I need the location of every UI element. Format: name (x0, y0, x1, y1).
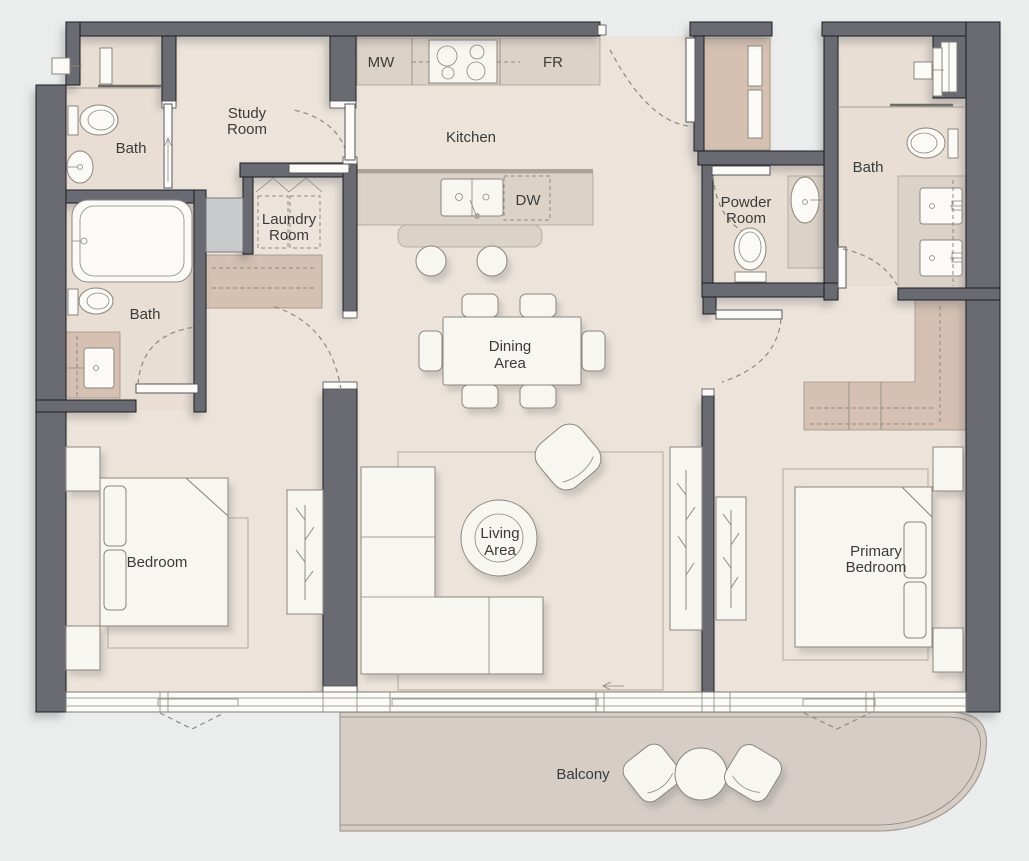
shower-head-icon (52, 58, 70, 74)
primary-bedroom-label: Bedroom (846, 559, 907, 576)
kitchen-label: Kitchen (446, 129, 496, 146)
bathtub-icon (72, 200, 192, 282)
bedroom-label: Bedroom (127, 554, 188, 571)
entry-door-leaf (686, 38, 695, 122)
bath-right-label: Bath (853, 159, 884, 176)
floor-plan-drawing: Study Room Kitchen Bath Laundry Room Pow… (0, 0, 1029, 861)
powder-label: Room (726, 210, 766, 227)
study-room-label: Room (227, 121, 267, 138)
dresser (287, 490, 323, 614)
island-breakfast-ledge (398, 225, 542, 247)
microwave-label: MW (368, 54, 395, 71)
pillow (904, 522, 926, 578)
entry-closet-door (748, 90, 762, 138)
toilet-icon (68, 105, 118, 135)
island-counter-edge (357, 169, 593, 173)
laundry-label: Laundry (262, 211, 317, 228)
dining-chair (520, 294, 556, 317)
dining-chair (582, 331, 605, 371)
shower-bar-icon (100, 48, 112, 84)
pillow (104, 550, 126, 610)
cooktop (429, 40, 497, 83)
pillow (104, 486, 126, 546)
dining-label: Area (494, 355, 526, 372)
balcony-furniture (618, 739, 786, 806)
toilet-icon (734, 228, 766, 282)
bath-left-door-leaf (136, 384, 198, 393)
balcony-label: Balcony (556, 766, 610, 783)
living-label: Area (484, 542, 516, 559)
dishwasher-label: DW (516, 192, 542, 209)
primary-bedroom-label: Primary (850, 543, 902, 560)
nightstand (66, 626, 100, 670)
nightstand (66, 447, 100, 491)
balcony (340, 712, 986, 831)
dining-chair (419, 331, 442, 371)
dining-chair (462, 385, 498, 408)
fridge-label: FR (543, 54, 563, 71)
study-room-label: Study (228, 105, 267, 122)
kitchen-sink (441, 179, 503, 219)
shower-glass-cube (206, 198, 243, 252)
dining-label: Dining (489, 338, 532, 355)
hall-closet (206, 255, 322, 308)
nightstand (933, 628, 963, 672)
balcony-table (675, 748, 727, 800)
bath-right-door-leaf (838, 247, 846, 288)
media-console (716, 497, 746, 620)
dining-chair (462, 294, 498, 317)
media-console (670, 447, 702, 630)
entry-closet-door (748, 46, 762, 86)
shower-bar-icon (933, 48, 942, 96)
powder-label: Powder (721, 194, 772, 211)
shower-head-icon (914, 62, 932, 79)
powder-door-leaf (712, 166, 770, 175)
toilet-icon (907, 128, 958, 158)
window-swing-marker (160, 713, 224, 729)
study-door-leaf (289, 164, 349, 173)
toilet-icon (68, 288, 113, 315)
nightstand (933, 447, 963, 491)
dining-chair (520, 385, 556, 408)
floor-plan-page: Study Room Kitchen Bath Laundry Room Pow… (0, 0, 1029, 861)
primary-hall-door-leaf (716, 310, 782, 319)
laundry-label: Room (269, 227, 309, 244)
kitchen-pocket-door (345, 104, 355, 160)
bath-left-label: Bath (130, 306, 161, 323)
pillow (904, 582, 926, 638)
bath-top-left-label: Bath (116, 140, 147, 157)
living-label: Living (480, 525, 519, 542)
